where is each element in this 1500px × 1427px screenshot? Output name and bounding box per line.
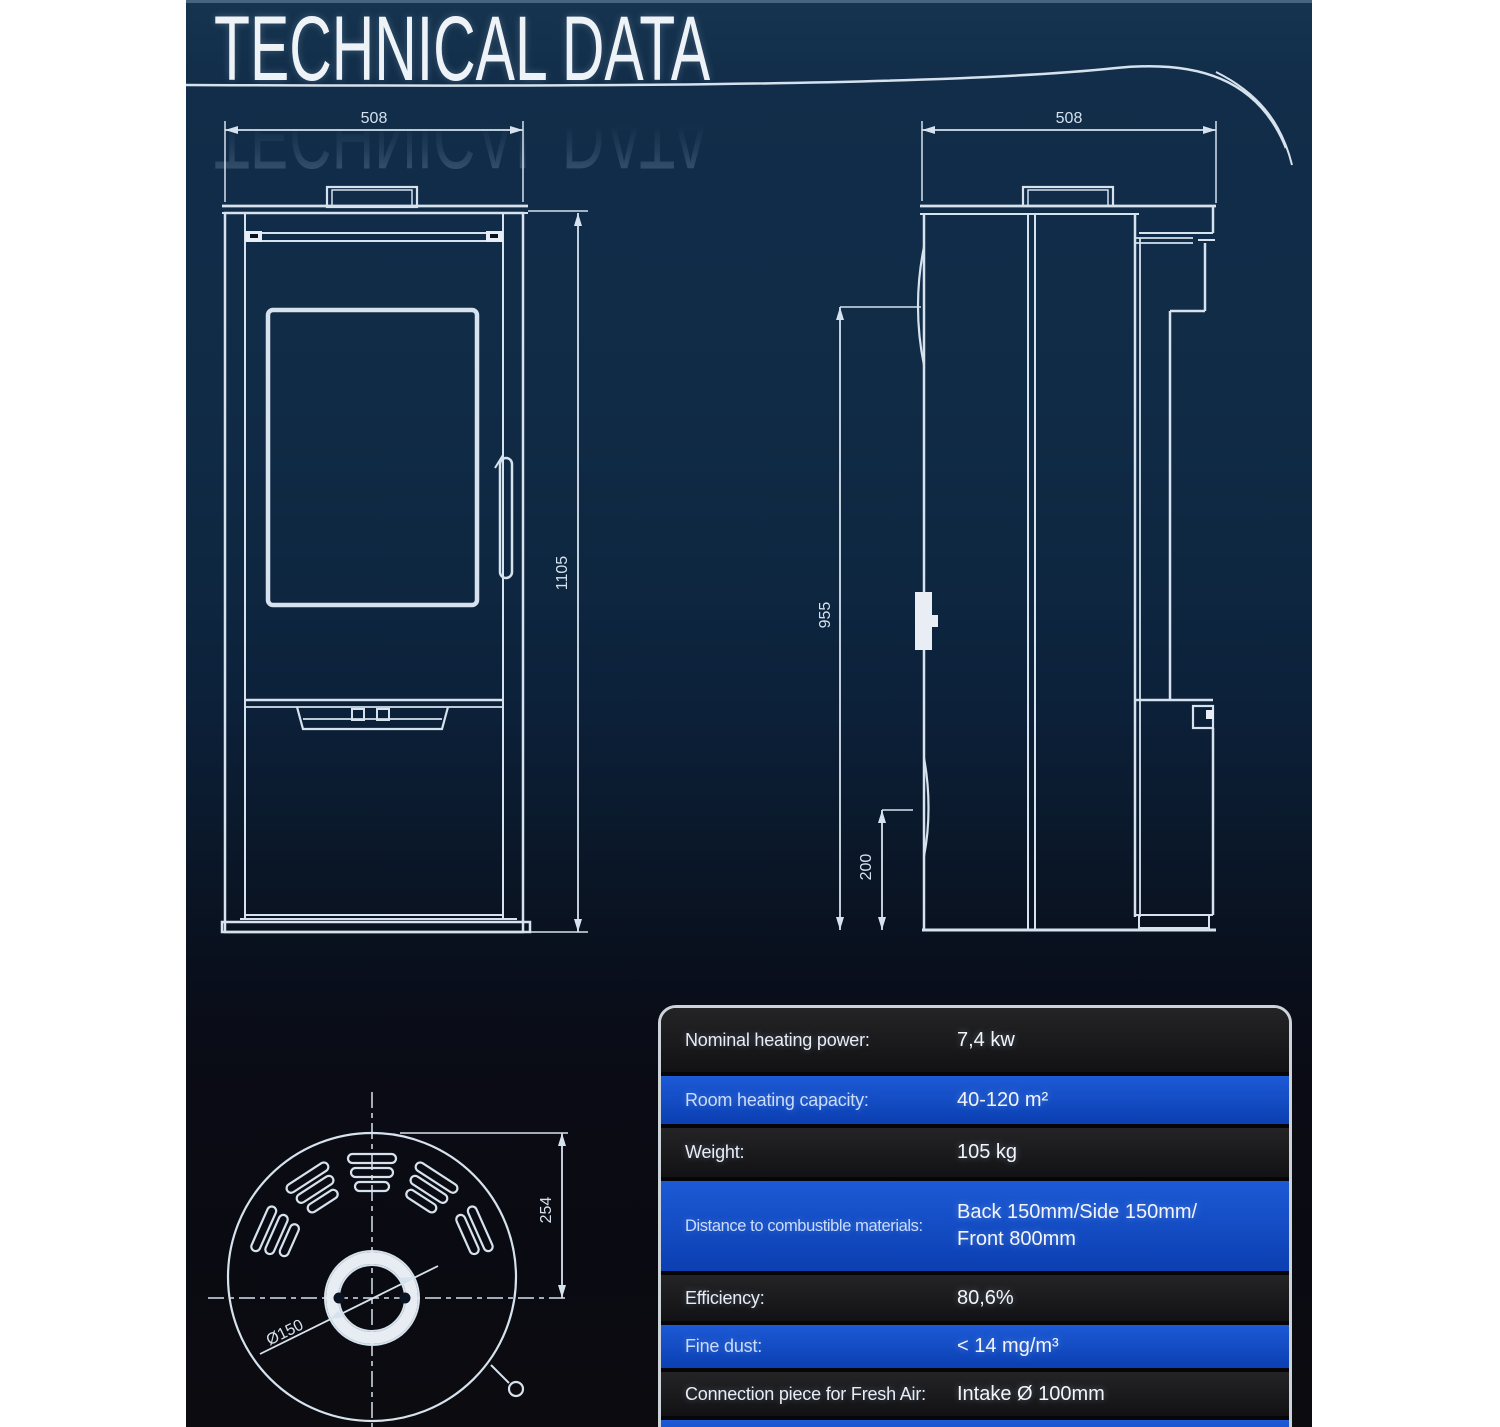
flue-offset-label: 254	[538, 1197, 555, 1224]
top-view-drawing: Ø150 254	[208, 1092, 568, 1427]
table-row: Distance to combustible materials: Back …	[661, 1181, 1289, 1271]
row-value: 105 kg	[957, 1139, 1279, 1166]
row-value: 40-120 m²	[957, 1087, 1279, 1114]
row-label: Weight:	[685, 1142, 957, 1163]
table-row: Connection piece for Fresh Air: Intake Ø…	[661, 1372, 1289, 1416]
row-value: 80,6%	[957, 1285, 1279, 1312]
side-view-drawing: 508	[817, 110, 1216, 930]
side-depth-label: 508	[1056, 110, 1083, 127]
table-row: Fine dust: < 14 mg/m³	[661, 1325, 1289, 1368]
datasheet-poster: TECHNICAL DATA TECHNICAL DATA 508	[186, 0, 1312, 1427]
row-label: Efficiency:	[685, 1288, 957, 1309]
table-row	[661, 1420, 1289, 1427]
side-rear-height-label: 955	[817, 602, 834, 629]
page: TECHNICAL DATA TECHNICAL DATA 508	[0, 0, 1500, 1427]
technical-data-table: Nominal heating power: 7,4 kw Room heati…	[658, 1005, 1292, 1427]
row-value: Back 150mm/Side 150mm/Front 800mm	[957, 1199, 1279, 1253]
door-catch-knob	[491, 1365, 523, 1396]
table-row: Weight: 105 kg	[661, 1128, 1289, 1177]
title-underline-swoosh	[186, 66, 1292, 165]
row-value: 7,4 kw	[957, 1027, 1279, 1054]
front-width-label: 508	[361, 110, 388, 127]
flue-diameter-label: Ø150	[264, 1317, 307, 1350]
table-row: Efficiency: 80,6%	[661, 1275, 1289, 1321]
row-value: < 14 mg/m³	[957, 1333, 1279, 1360]
table-row: Room heating capacity: 40-120 m²	[661, 1076, 1289, 1124]
row-label: Nominal heating power:	[685, 1030, 957, 1051]
row-label: Distance to combustible materials:	[685, 1217, 957, 1236]
side-clearance-label: 200	[858, 854, 875, 881]
front-view-drawing: 508	[222, 110, 588, 932]
row-label: Room heating capacity:	[685, 1090, 957, 1111]
front-height-label: 1105	[554, 556, 571, 591]
row-label: Connection piece for Fresh Air:	[685, 1384, 957, 1405]
row-value: Intake Ø 100mm	[957, 1381, 1279, 1408]
row-label: Fine dust:	[685, 1336, 957, 1357]
table-row: Nominal heating power: 7,4 kw	[661, 1008, 1289, 1072]
